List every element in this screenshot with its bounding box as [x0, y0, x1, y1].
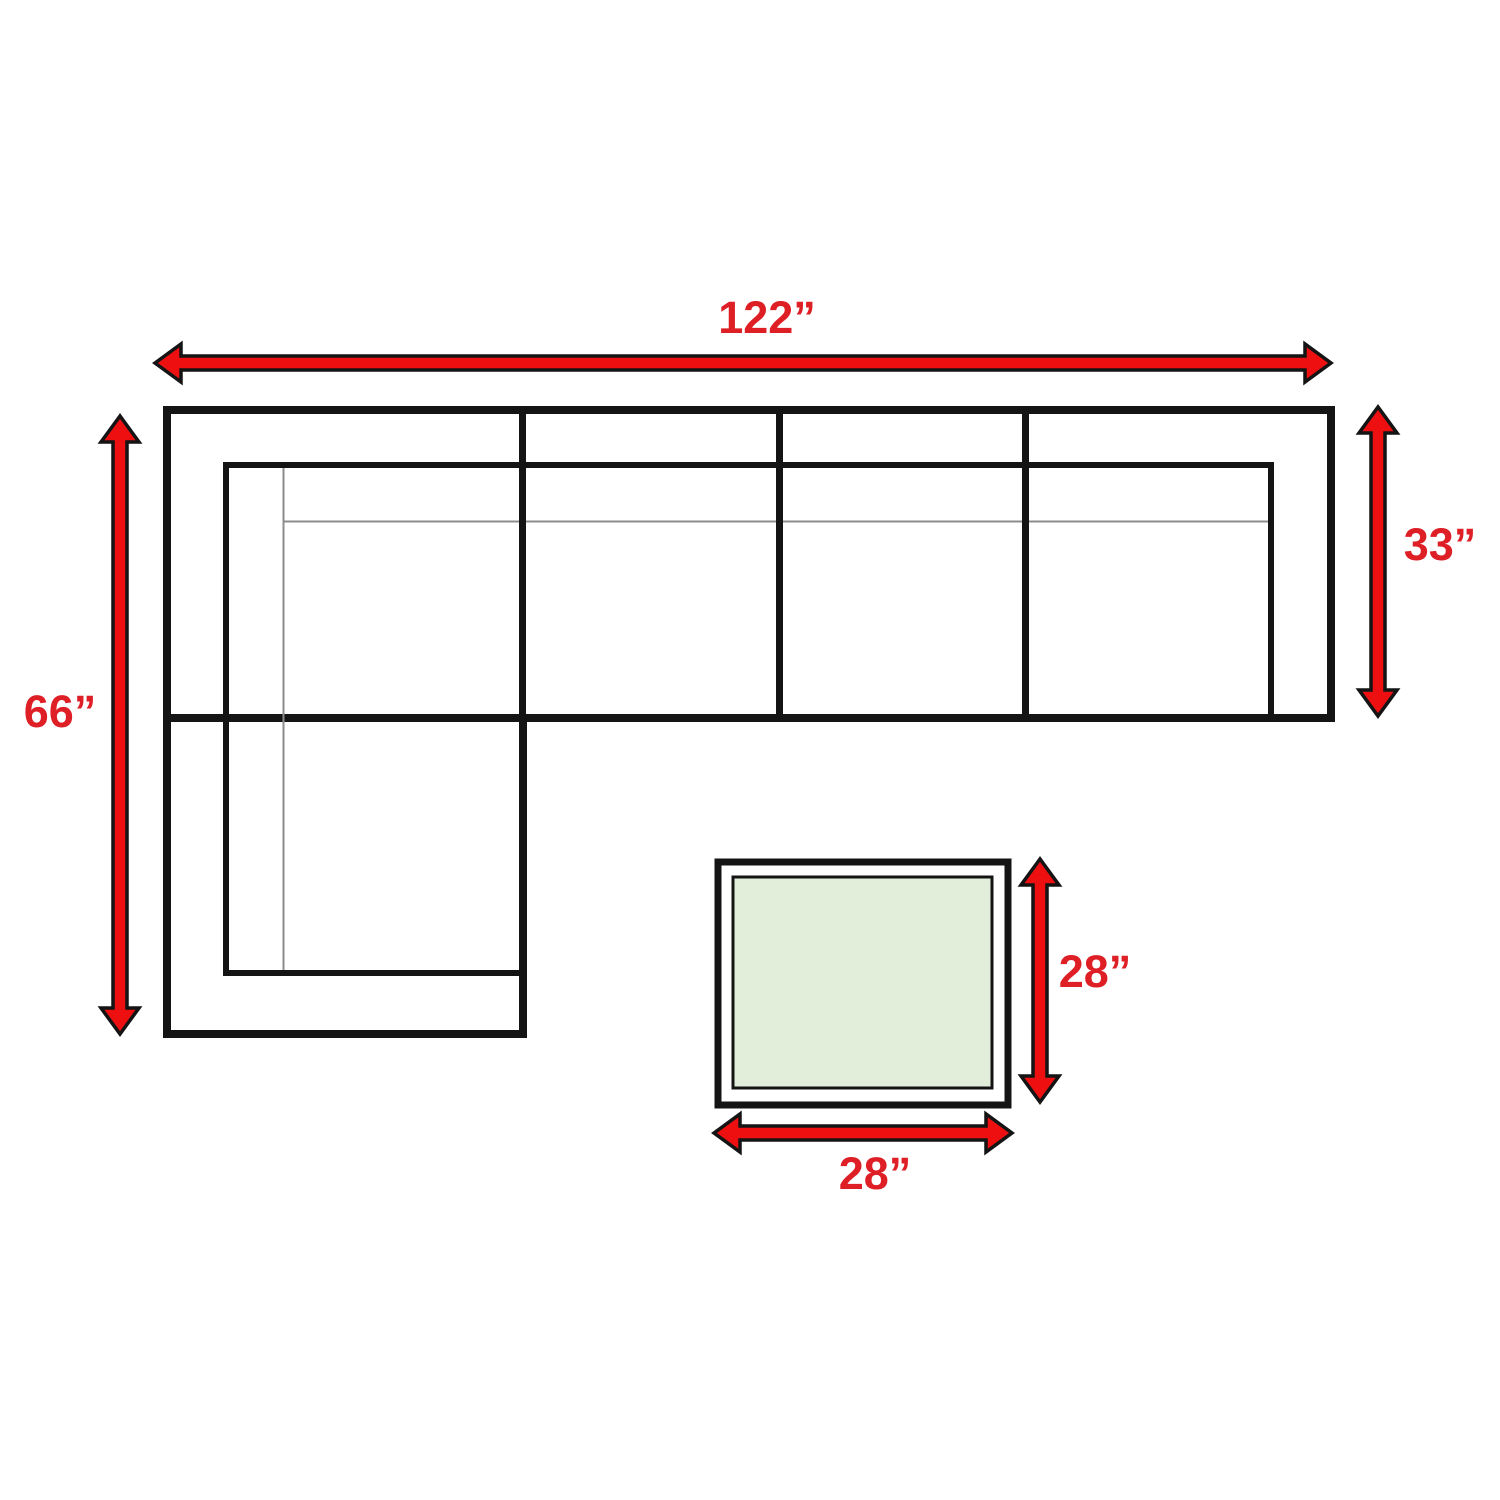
- sofa-width-label: 122”: [718, 292, 816, 343]
- ottoman-width-arrow: [714, 1114, 1012, 1152]
- sofa-width-arrow: [155, 344, 1331, 382]
- sofa-left-depth-label: 66”: [24, 686, 97, 737]
- sofa-right-depth-label: 33”: [1404, 519, 1477, 570]
- ottoman-width-label: 28”: [839, 1148, 912, 1199]
- sofa-left-depth-arrow: [101, 416, 139, 1034]
- furniture-dimension-diagram: 122” 66” 33” 28” 28”: [0, 0, 1500, 1500]
- diagram-canvas: 122” 66” 33” 28” 28”: [0, 0, 1500, 1500]
- ottoman-depth-label: 28”: [1059, 946, 1132, 997]
- ottoman-top-surface: [733, 877, 992, 1088]
- sofa-main-outline: [167, 410, 1331, 718]
- sofa-right-depth-arrow: [1359, 407, 1397, 716]
- ottoman-depth-arrow: [1021, 859, 1059, 1102]
